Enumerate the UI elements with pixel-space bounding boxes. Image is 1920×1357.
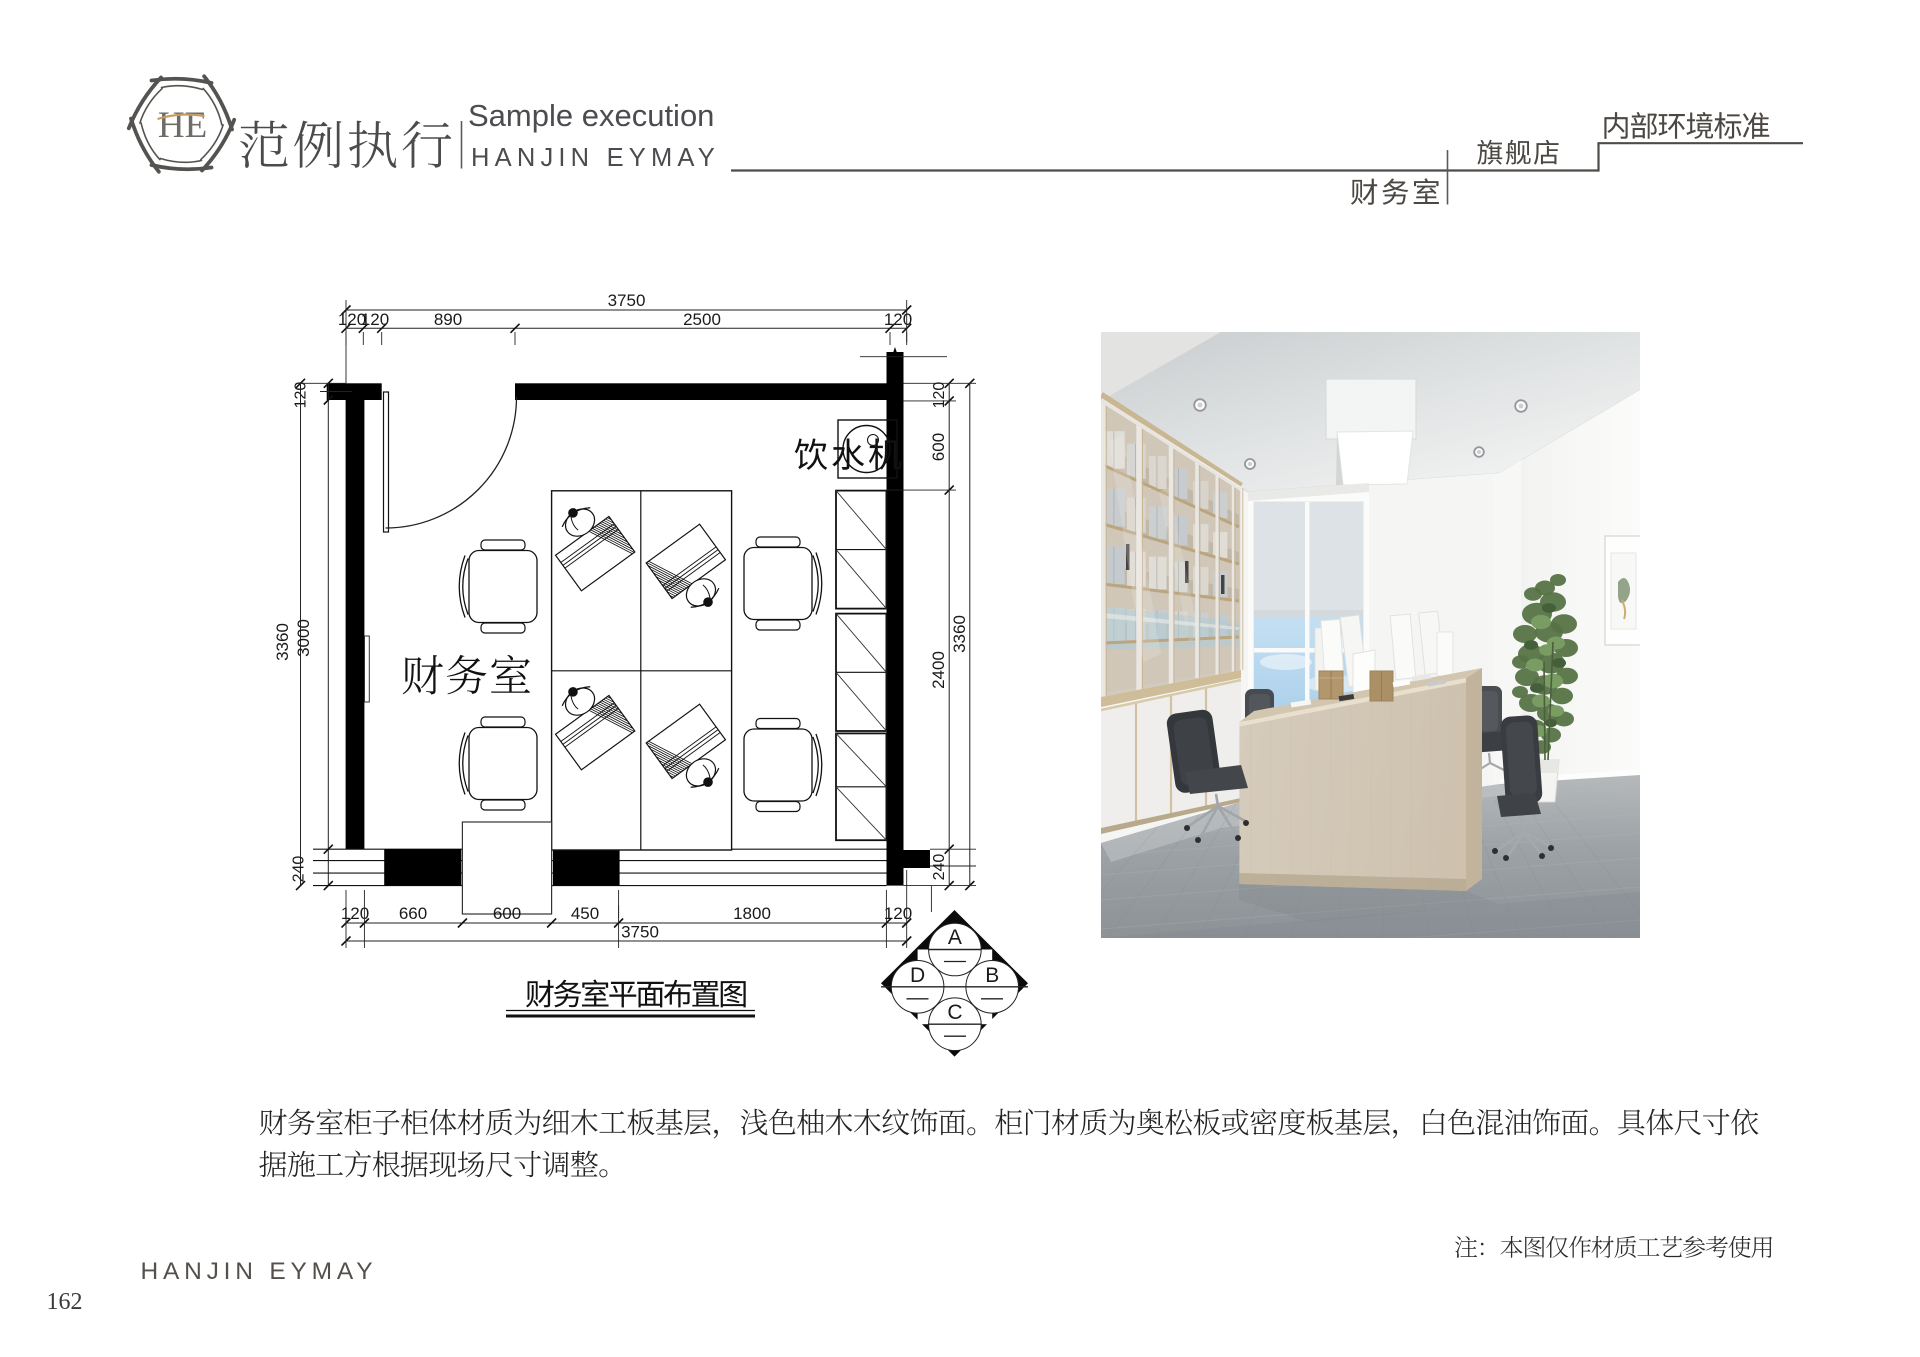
svg-text:HE: HE <box>158 105 207 146</box>
svg-text:162: 162 <box>47 1289 83 1315</box>
svg-text:1800: 1800 <box>733 904 771 923</box>
svg-text:2400: 2400 <box>929 651 948 689</box>
svg-text:120: 120 <box>884 310 912 329</box>
svg-text:660: 660 <box>399 904 427 923</box>
svg-text:120: 120 <box>931 382 948 409</box>
svg-text:2500: 2500 <box>683 310 721 329</box>
svg-text:A: A <box>948 926 962 949</box>
svg-text:120: 120 <box>361 310 389 329</box>
svg-text:3000: 3000 <box>294 619 313 657</box>
svg-text:600: 600 <box>493 904 521 923</box>
svg-text:C: C <box>947 1001 962 1024</box>
svg-text:HANJIN EYMAY: HANJIN EYMAY <box>471 144 720 172</box>
svg-text:Sample execution: Sample execution <box>468 98 714 133</box>
svg-text:890: 890 <box>434 310 462 329</box>
svg-text:HANJIN EYMAY: HANJIN EYMAY <box>141 1258 378 1285</box>
svg-text:240: 240 <box>291 856 308 883</box>
svg-text:3360: 3360 <box>273 623 292 661</box>
svg-text:240: 240 <box>931 854 948 881</box>
svg-text:120: 120 <box>884 904 912 923</box>
svg-text:B: B <box>985 964 999 987</box>
svg-text:D: D <box>910 964 925 987</box>
svg-text:3360: 3360 <box>950 615 969 653</box>
svg-text:120: 120 <box>341 904 369 923</box>
svg-text:3750: 3750 <box>608 291 646 310</box>
svg-text:600: 600 <box>929 433 948 461</box>
svg-text:450: 450 <box>571 904 599 923</box>
svg-text:3750: 3750 <box>621 923 659 942</box>
svg-text:120: 120 <box>293 382 310 409</box>
